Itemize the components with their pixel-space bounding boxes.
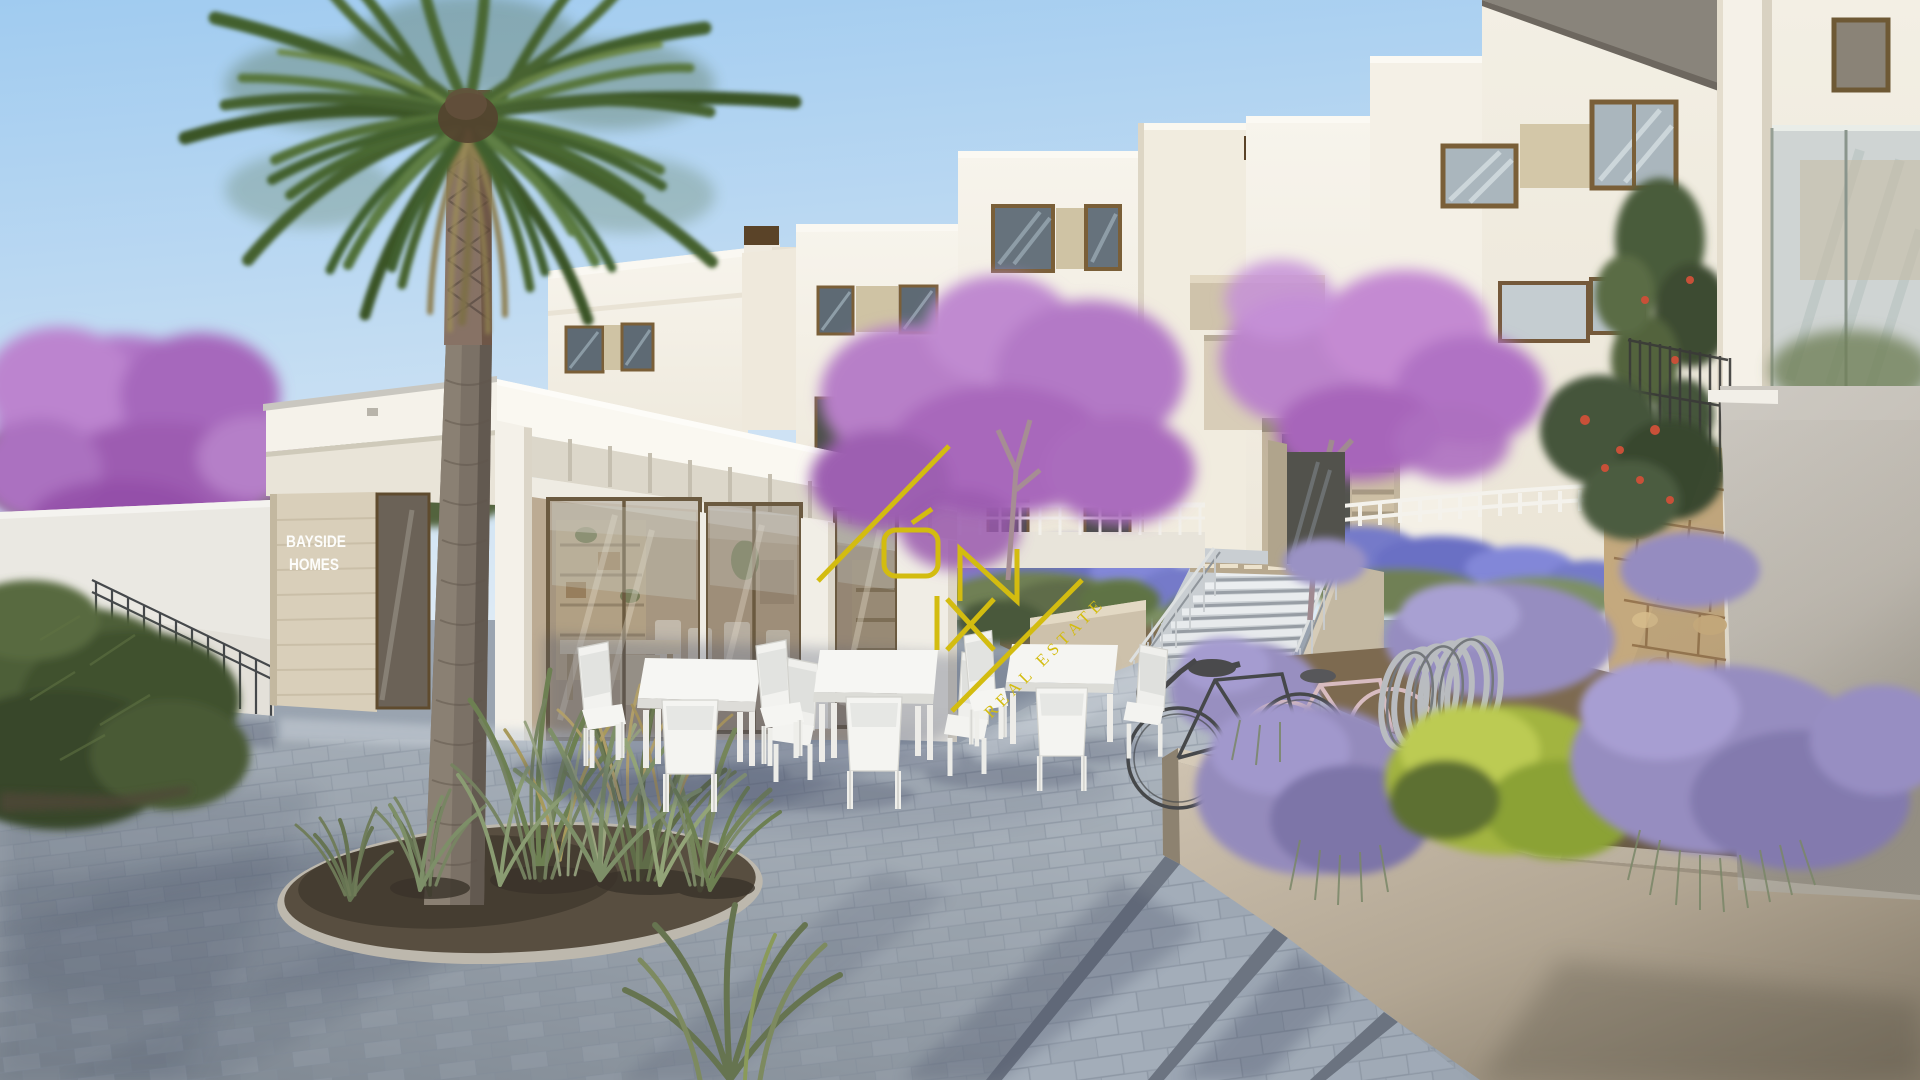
svg-text:BAYSIDE: BAYSIDE: [286, 532, 346, 551]
svg-text:HOMES: HOMES: [289, 555, 339, 574]
